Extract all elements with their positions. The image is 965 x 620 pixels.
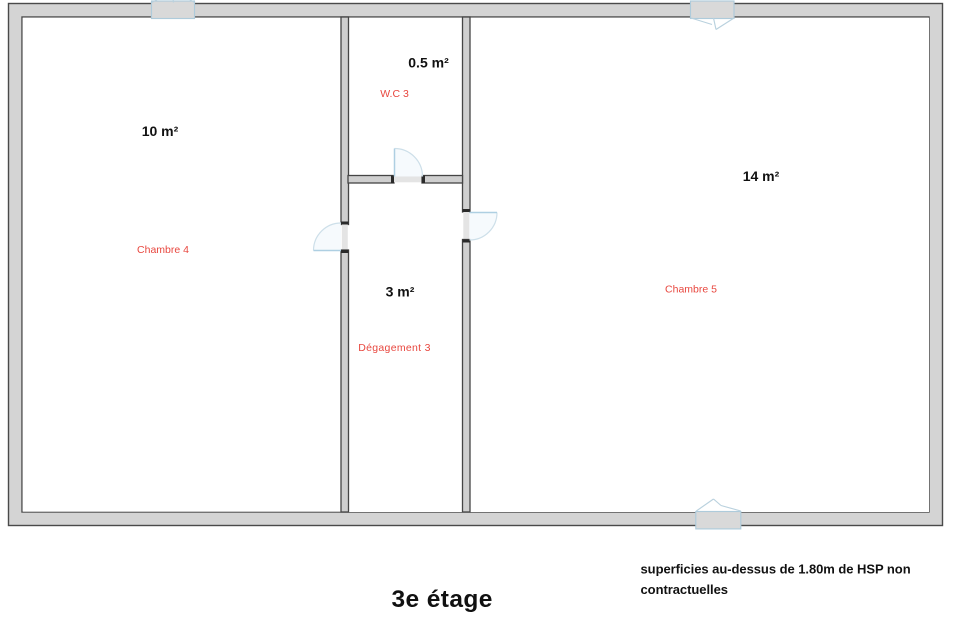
svg-text:W.C 3: W.C 3 xyxy=(380,88,409,100)
svg-text:superficies au-dessus de 1.80m: superficies au-dessus de 1.80m de HSP no… xyxy=(641,562,911,577)
svg-text:Chambre 5: Chambre 5 xyxy=(665,284,717,296)
svg-text:3e étage: 3e étage xyxy=(392,586,493,613)
svg-text:Dégagement 3: Dégagement 3 xyxy=(358,342,430,354)
svg-text:10 m²: 10 m² xyxy=(142,123,179,139)
svg-text:0.5 m²: 0.5 m² xyxy=(408,55,449,71)
svg-text:Chambre 4: Chambre 4 xyxy=(137,244,189,256)
svg-text:contractuelles: contractuelles xyxy=(641,582,728,597)
svg-text:14 m²: 14 m² xyxy=(743,168,780,184)
svg-text:3 m²: 3 m² xyxy=(386,284,415,300)
